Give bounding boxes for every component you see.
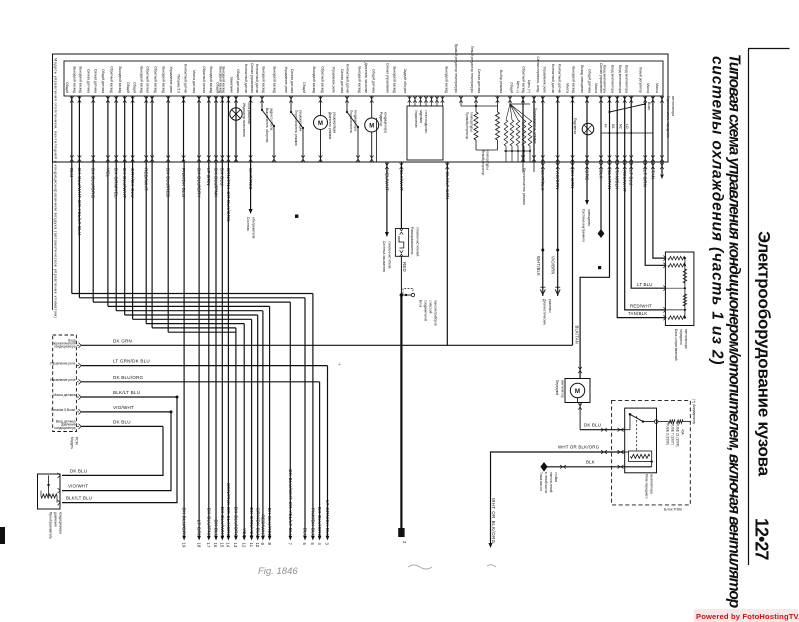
svg-text:Вход вентилятора: Вход вентилятора [618, 65, 622, 93]
svg-text:Выкл.: Выкл. [647, 102, 651, 111]
svg-text:Блок PDB: Блок PDB [664, 508, 682, 512]
svg-text:Индикатор включения: Индикатор включения [242, 103, 246, 137]
svg-text:Левый регулятор температуры: Левый регулятор температуры [470, 46, 474, 94]
svg-text:BLK: BLK [598, 170, 603, 179]
svg-text:стеклоподъемн.: стеклоподъемн. [424, 110, 428, 134]
svg-text:вентилятора: вентилятора [684, 329, 688, 349]
svg-text:рециркуляции: рециркуляции [333, 112, 337, 133]
svg-text:Размораживатель: Размораживатель [410, 227, 414, 255]
svg-text:кондиционера: кондиционера [54, 426, 75, 430]
svg-text:Система внутреннего: Система внутреннего [582, 209, 586, 242]
svg-text:Обратный каскад: Обратный каскад [321, 66, 325, 93]
svg-text:Задний обогрев: Задний обогрев [403, 69, 407, 94]
svg-text:BLK: BLK [586, 459, 595, 464]
svg-text:M2: M2 [619, 124, 623, 129]
svg-text:YEL/WHT: YEL/WHT [384, 170, 389, 191]
svg-text:заднего стекла: заднего стекла [270, 108, 274, 130]
svg-text:Выходной каскад: Выходной каскад [312, 66, 316, 93]
svg-text:Сигнал управления: Сигнал управления [599, 63, 603, 93]
svg-text:Контактный датчик: Контактный датчик [255, 64, 259, 94]
svg-text:Модуль управления отоплением,: Модуль управления отоплением, вентиляцие… [54, 58, 59, 318]
svg-text:WHT OR BLK/ORG: WHT OR BLK/ORG [558, 445, 600, 450]
svg-text:Зажигание: Зажигание [230, 77, 234, 93]
svg-text:Блок: Блок [419, 300, 423, 308]
svg-text:панели левой: панели левой [549, 472, 553, 493]
svg-text:LT GRN: LT GRN [197, 520, 202, 538]
svg-text:Двигатель заслонки: Двигатель заслонки [364, 63, 368, 94]
svg-text:LT GRN/DK BLU: LT GRN/DK BLU [113, 359, 150, 364]
svg-text:DK BLU: DK BLU [70, 468, 87, 473]
svg-text:LT GRN/DK BLU: LT GRN/DK BLU [325, 500, 330, 537]
svg-text:рециркуляции: рециркуляции [299, 110, 303, 131]
svg-text:M: M [575, 388, 580, 395]
svg-text:DK BLU/GRY: DK BLU/GRY [182, 507, 187, 537]
svg-text:в левой части: в левой части [544, 472, 548, 493]
svg-text:Переключатель: Переключатель [349, 110, 353, 134]
svg-text:BLK/WHT: BLK/WHT [399, 170, 404, 191]
svg-text:Выбор режима: Выбор режима [499, 70, 503, 93]
svg-text:Управление реле: Управление реле [50, 378, 76, 382]
svg-text:FUSE 3 (1996): FUSE 3 (1996) [666, 424, 670, 445]
svg-text:FUSE 21 (1998): FUSE 21 (1998) [676, 424, 680, 447]
svg-text:Выходной каскад: Выходной каскад [445, 66, 449, 93]
svg-text:Масса: Масса [655, 83, 659, 93]
svg-text:Выходной каскад: Выходной каскад [572, 66, 576, 93]
svg-text:Выход освещения: Выход освещения [580, 65, 584, 93]
svg-text:Масса датчика: Масса датчика [192, 70, 196, 93]
svg-text:Выходной каскад: Выходной каскад [262, 66, 266, 93]
svg-text:Контактный датчик: Контактный датчик [184, 64, 188, 94]
svg-text:BRN/PNK OR BLK/ORG: BRN/PNK OR BLK/ORG [226, 483, 231, 538]
svg-text:Радиатор: Радиатор [379, 112, 383, 126]
svg-text:19: 19 [181, 543, 186, 549]
svg-text:DK BLU/RED: DK BLU/RED [267, 508, 272, 538]
svg-text:RED/WHT: RED/WHT [261, 514, 266, 537]
svg-text:Общий: Общий [65, 82, 69, 93]
svg-text:DK GRN: DK GRN [570, 170, 575, 188]
svg-text:BLK/TAN: BLK/TAN [575, 325, 580, 344]
svg-text:Левый регулятор: Левый регулятор [638, 67, 642, 93]
svg-text:Выходной каскад: Выходной каскад [118, 66, 122, 93]
svg-text:LO: LO [625, 124, 629, 129]
svg-text:Вход вентилятора: Вход вентилятора [603, 65, 607, 93]
svg-text:Вход вентилятора: Вход вентилятора [610, 65, 614, 93]
svg-text:6: 6 [302, 543, 307, 546]
svg-text:Переключатель режима: Переключатель режима [294, 110, 298, 146]
svg-text:LT BLU: LT BLU [629, 170, 634, 186]
svg-text:LT GRN: LT GRN [643, 170, 648, 187]
svg-text:Контактный датчик: Контактный датчик [558, 64, 562, 94]
svg-text:Выходной каскад: Выходной каскад [358, 66, 362, 93]
svg-text:4: 4 [317, 543, 322, 546]
svg-text:Обратный сигнал: Обратный сигнал [145, 66, 149, 93]
svg-text:40A: 40A [681, 429, 685, 436]
svg-text:TAN/BLK: TAN/BLK [628, 311, 647, 316]
svg-text:Переключатель переднего: Переключатель переднего [666, 96, 670, 138]
svg-text:HI: HI [604, 124, 608, 127]
svg-text:обогревателя: обогревателя [252, 217, 256, 239]
svg-text:WHT/BLK: WHT/BLK [540, 170, 545, 191]
svg-text:DK GRN: DK GRN [113, 338, 132, 343]
svg-text:температуры: температуры [470, 112, 474, 132]
svg-text:DK BLU/ORG: DK BLU/ORG [317, 507, 322, 538]
svg-text:Выходной каскад: Выходной каскад [273, 66, 277, 93]
svg-text:2: 2 [402, 541, 407, 544]
svg-text:вентилятора: вентилятора [650, 474, 654, 494]
svg-text:Выключатель обогрева: Выключатель обогрева [265, 108, 269, 143]
svg-text:PCM: PCM [75, 437, 79, 445]
svg-text:Общий датчика: Общий датчика [236, 69, 240, 93]
svg-text:Управление: Управление [414, 110, 418, 128]
svg-text:Выходной каскад: Выходной каскад [73, 66, 77, 93]
svg-text:Общий: Общий [216, 82, 220, 93]
svg-text:Общий: Общий [133, 82, 137, 93]
svg-text:DK BLU/ORG: DK BLU/ORG [113, 375, 144, 380]
svg-text:DK BLU/ORG: DK BLU/ORG [234, 507, 239, 538]
svg-text:Питание 5 Вольт: Питание 5 Вольт [51, 408, 76, 412]
svg-text:Общий: Общий [126, 82, 130, 93]
svg-text:вентилятора: вентилятора [671, 96, 675, 116]
svg-text:Двигатель режима: Двигатель режима [328, 112, 332, 140]
svg-text:BLK/LT BLU: BLK/LT BLU [113, 390, 140, 395]
svg-text:17: 17 [206, 543, 211, 549]
svg-text:Передний: Передний [555, 380, 559, 395]
svg-text:PNK/DK BLU: PNK/DK BLU [181, 168, 186, 197]
svg-text:Управление реле: Управление реле [50, 362, 76, 366]
svg-text:FUSE 7 (1997): FUSE 7 (1997) [671, 424, 675, 445]
svg-text:Модуль: Модуль [70, 437, 74, 449]
svg-text:Правый регулятор: Правый регулятор [465, 112, 469, 140]
svg-text:Общий: Общий [302, 82, 306, 93]
svg-text:Блок сопротивлений: Блок сопротивлений [674, 329, 678, 361]
svg-text:12: 12 [241, 543, 246, 549]
svg-text:Масса датчика: Масса датчика [53, 393, 75, 397]
svg-text:11: 11 [249, 543, 254, 548]
svg-text:Сигнал датчика: Сигнал датчика [477, 69, 481, 93]
svg-text:14: 14 [226, 543, 231, 549]
svg-text:ORG: ORG [584, 170, 589, 181]
svg-text:с массой: с массой [429, 300, 433, 313]
svg-text:Переключатель режима: Переключатель режима [522, 168, 526, 205]
svg-text:WHT/BLK: WHT/BLK [536, 256, 541, 276]
svg-text:7: 7 [288, 543, 293, 546]
svg-text:Fig. 1846: Fig. 1846 [258, 566, 298, 577]
svg-text:Обратный каскад: Обратный каскад [109, 66, 113, 93]
svg-text:8: 8 [267, 543, 272, 546]
svg-text:Обратный каскад: Обратный каскад [154, 66, 158, 93]
svg-text:Общий датчика: Общий датчика [588, 69, 592, 93]
svg-text:Масса: Масса [566, 83, 570, 93]
svg-text:RED: RED [402, 262, 407, 272]
svg-text:BLK/TAN: BLK/TAN [607, 170, 612, 189]
svg-text:Цепь (+): Цепь (+) [527, 80, 531, 93]
svg-text:панели приборов: панели приборов [434, 300, 438, 326]
svg-text:Масса: Масса [646, 83, 650, 93]
svg-text:стеклоочистителей: стеклоочистителей [416, 227, 420, 257]
svg-text:давления: давления [54, 512, 58, 527]
svg-text:Система омывателя: Система омывателя [382, 241, 386, 272]
svg-text:16: 16 [213, 543, 218, 549]
svg-text:TAN: TAN [650, 170, 655, 179]
svg-text:18: 18 [196, 543, 201, 549]
svg-text:3: 3 [325, 543, 330, 546]
svg-text:температуры: температуры [486, 150, 490, 170]
svg-text:Обратный каскад: Обратный каскад [522, 66, 526, 93]
svg-text:DK BLU: DK BLU [214, 520, 219, 538]
svg-text:Сигнал датчика: Сигнал датчика [94, 69, 98, 93]
svg-text:Контактный датчик: Контактный датчик [551, 64, 555, 94]
svg-text:DK BLU/WHT: DK BLU/WHT [220, 507, 225, 538]
svg-text:кондиционера: кондиционера [354, 110, 358, 131]
svg-text:Управление реле: Управление реле [543, 66, 547, 93]
svg-text:освещения: освещения [587, 209, 591, 226]
svg-text:Контактный датчик: Контактный датчик [244, 64, 248, 94]
svg-text:Левый регулятор: Левый регулятор [481, 150, 485, 176]
svg-text:Общий датчика: Общий датчика [372, 69, 376, 93]
svg-text:кондиционера: кондиционера [384, 112, 388, 133]
svg-text:Выходной каскад: Выходной каскад [222, 66, 226, 93]
svg-text:DK BLU/WHT OR YEL/LT BLU: DK BLU/WHT OR YEL/LT BLU [288, 469, 293, 537]
svg-text:Выходной каскад: Выходной каскад [139, 66, 143, 93]
svg-text:DK BLU: DK BLU [113, 419, 131, 424]
svg-text:BLK/LT GRN: BLK/LT GRN [445, 172, 450, 199]
svg-text:VIO/BRN: VIO/BRN [555, 170, 560, 189]
svg-text:GRY/DK BLU: GRY/DK BLU [255, 507, 260, 537]
svg-text:Сигнал управления: Сигнал управления [386, 63, 390, 93]
svg-text:DK GRN/YEL: DK GRN/YEL [249, 507, 254, 537]
svg-text:Сигнал переключ. конд.: Сигнал переключ. конд. [536, 56, 540, 93]
svg-text:Питание 5.0: Питание 5.0 [177, 74, 181, 93]
svg-text:VIO/WHT: VIO/WHT [113, 405, 134, 410]
svg-text:13: 13 [233, 543, 238, 549]
svg-text:Диагностические: Диагностические [543, 299, 547, 325]
svg-text:Powered by FotoHostingTV.RU: Powered by FotoHostingTV.RU [696, 612, 799, 621]
svg-text:Электрооборудование кузова: Электрооборудование кузова [755, 231, 774, 477]
svg-text:Выходной каскад: Выходной каскад [79, 66, 83, 93]
svg-text:Реле переднего: Реле переднего [644, 474, 648, 498]
svg-text:Общий: Общий [510, 82, 514, 93]
svg-text:DK BLU: DK BLU [584, 423, 601, 428]
svg-text:WHT OR BLK/ORG: WHT OR BLK/ORG [491, 498, 496, 544]
svg-text:M: M [318, 121, 323, 127]
svg-text:соединителей: соединителей [424, 300, 428, 321]
svg-text:Точка массы: Точка массы [539, 472, 543, 491]
svg-text:12•27: 12•27 [752, 518, 772, 560]
svg-text:M: M [369, 124, 374, 130]
svg-text:стойки: стойки [554, 472, 558, 482]
svg-text:Выходной каскад: Выходной каскад [393, 66, 397, 93]
svg-text:PNK/DK BLU: PNK/DK BLU [311, 508, 316, 538]
svg-text:LT BLU: LT BLU [637, 282, 653, 287]
svg-text:Цепь (-): Цепь (-) [516, 81, 520, 93]
svg-text:задними: задними [419, 110, 423, 123]
svg-text:BLK/LT BLU: BLK/LT BLU [66, 496, 92, 501]
svg-text:Правый регулятор температуры: Правый регулятор температуры [454, 44, 458, 94]
svg-text:вентилятор: вентилятор [561, 380, 565, 398]
svg-text:Контактный датчик: Контактный датчик [346, 64, 350, 94]
svg-text:Сигнал датчика: Сигнал датчика [86, 69, 90, 93]
svg-text:VIO/BRN: VIO/BRN [551, 256, 556, 275]
svg-text:DK BLU/PNK: DK BLU/PNK [206, 508, 211, 538]
svg-text:15: 15 [220, 543, 225, 549]
svg-text:системы охлаждения (часть 1 из: системы охлаждения (часть 1 из 2) [709, 56, 726, 365]
svg-text:кондиционера: кондиционера [59, 512, 63, 534]
svg-text:Обратный сигнал: Обратный сигнал [202, 66, 206, 93]
svg-text:YEL: YEL [242, 528, 247, 538]
svg-text:5: 5 [310, 543, 315, 546]
svg-text:Типовая схема управления конди: Типовая схема управления кондиционером/о… [726, 54, 743, 608]
svg-text:Сигнал датчика: Сигнал датчика [340, 69, 344, 93]
svg-text:Масса: Масса [594, 83, 598, 93]
svg-text:Преобразователь: Преобразователь [49, 512, 53, 539]
svg-text:10: 10 [255, 543, 260, 549]
svg-text:Управление реле: Управление реле [169, 66, 173, 93]
svg-text:Выходной каскад: Выходной каскад [209, 66, 213, 93]
svg-text:RED/WHT: RED/WHT [622, 170, 627, 192]
svg-text:M1: M1 [611, 124, 615, 129]
svg-text:TAN/BLK: TAN/BLK [615, 170, 620, 189]
svg-text:BLU: BLU [303, 528, 308, 538]
svg-text:Подсветка: Подсветка [573, 118, 577, 134]
svg-text:Система: Система [246, 217, 250, 231]
svg-text:стеклоочистителя: стеклоочистителя [388, 241, 392, 269]
svg-text:кондиционера: кондиционера [54, 345, 75, 349]
svg-text:Сигнал управления: Сигнал управления [250, 63, 254, 93]
svg-text:+: + [338, 362, 341, 368]
svg-text:Управление реле: Управление реле [332, 66, 336, 93]
svg-text:Сигнал датчика: Сигнал датчика [290, 69, 294, 93]
svg-text:Вход вентилятора: Вход вентилятора [624, 65, 628, 93]
svg-text:(+) Аккумулятор: (+) Аккумулятор [692, 399, 696, 424]
svg-text:VIO/WHT: VIO/WHT [68, 484, 88, 489]
svg-text:переднего: переднего [679, 329, 683, 345]
svg-text:Управление реле: Управление реле [284, 66, 288, 93]
svg-text:RED/WHT: RED/WHT [630, 304, 652, 309]
svg-text:Выходной каскад: Выходной каскад [161, 66, 165, 93]
svg-text:Общий датчика: Общий датчика [101, 69, 105, 93]
svg-text:разъемы: разъемы [548, 299, 552, 313]
svg-text:WHT/RED: WHT/RED [248, 168, 253, 190]
